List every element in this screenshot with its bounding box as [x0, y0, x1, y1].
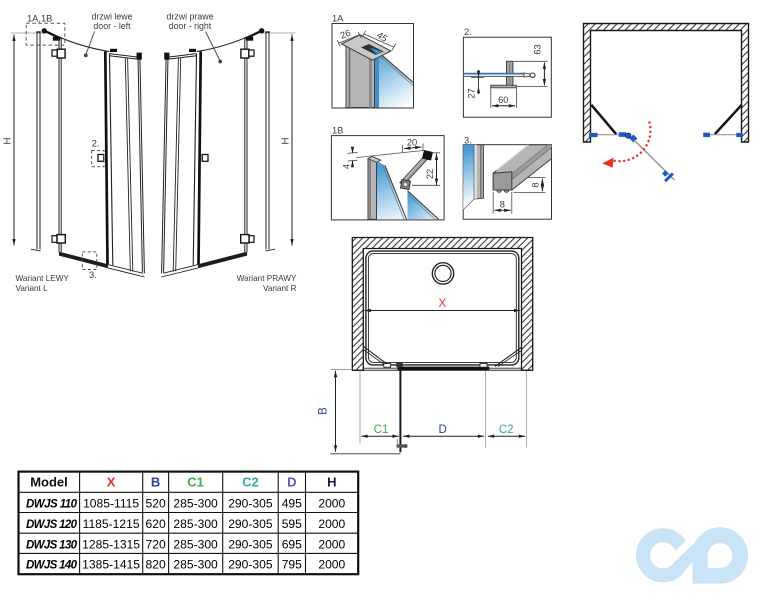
svg-text:8: 8 [531, 182, 541, 187]
svg-text:door - right: door - right [169, 21, 212, 31]
svg-text:285-300: 285-300 [173, 517, 218, 531]
svg-text:27: 27 [467, 88, 477, 98]
svg-text:X: X [438, 298, 446, 310]
svg-text:1185-1215: 1185-1215 [83, 517, 140, 531]
svg-text:60: 60 [498, 95, 508, 105]
svg-text:B: B [151, 475, 160, 490]
svg-text:20: 20 [407, 138, 417, 148]
svg-text:1085-1115: 1085-1115 [83, 497, 139, 511]
svg-text:290-305: 290-305 [228, 517, 273, 531]
svg-text:290-305: 290-305 [228, 558, 273, 572]
svg-text:C1: C1 [374, 424, 389, 436]
svg-text:B: B [318, 407, 330, 415]
svg-text:1B: 1B [332, 126, 343, 136]
svg-text:2000: 2000 [318, 497, 345, 511]
svg-text:1A,1B: 1A,1B [27, 14, 52, 24]
svg-text:285-300: 285-300 [173, 497, 218, 511]
svg-text:DWJS 110: DWJS 110 [26, 499, 78, 511]
svg-text:DWJS 120: DWJS 120 [26, 519, 78, 531]
svg-text:drzwi prawe: drzwi prawe [167, 11, 214, 21]
svg-text:620: 620 [146, 517, 166, 531]
svg-text:1A: 1A [332, 14, 344, 24]
svg-text:285-300: 285-300 [173, 537, 218, 551]
svg-text:8: 8 [500, 200, 505, 210]
svg-text:C1: C1 [187, 475, 204, 490]
svg-text:Variant R: Variant R [263, 284, 297, 293]
svg-text:Variant L: Variant L [16, 284, 49, 293]
svg-text:520: 520 [146, 497, 166, 511]
svg-text:3.: 3. [464, 136, 472, 146]
svg-text:285-300: 285-300 [173, 558, 218, 572]
svg-text:H: H [327, 475, 336, 490]
svg-text:3.: 3. [89, 270, 97, 280]
svg-text:290-305: 290-305 [228, 537, 273, 551]
svg-text:D: D [287, 475, 296, 490]
svg-text:DWJS 130: DWJS 130 [26, 539, 78, 551]
svg-text:2000: 2000 [318, 537, 345, 551]
svg-text:22: 22 [425, 169, 435, 179]
svg-text:63: 63 [532, 44, 542, 54]
svg-text:D: D [438, 424, 446, 436]
svg-text:Model: Model [30, 475, 68, 490]
svg-text:C2: C2 [242, 475, 259, 490]
svg-text:DWJS 140: DWJS 140 [26, 560, 78, 572]
svg-text:2.: 2. [464, 27, 472, 37]
svg-text:795: 795 [282, 558, 302, 572]
svg-text:2000: 2000 [318, 517, 345, 531]
svg-text:H: H [281, 137, 292, 144]
svg-text:290-305: 290-305 [228, 497, 273, 511]
svg-text:2.: 2. [92, 139, 100, 149]
svg-text:820: 820 [146, 558, 166, 572]
svg-text:4: 4 [342, 164, 352, 169]
svg-text:H: H [3, 137, 14, 144]
svg-text:1385-1415: 1385-1415 [82, 558, 140, 572]
svg-text:Wariant PRAWY: Wariant PRAWY [237, 274, 297, 283]
svg-text:495: 495 [282, 497, 302, 511]
svg-text:Wariant LEWY: Wariant LEWY [16, 274, 70, 283]
svg-text:595: 595 [282, 517, 302, 531]
svg-text:C2: C2 [499, 424, 514, 436]
svg-text:drzwi lewe: drzwi lewe [91, 11, 132, 21]
svg-text:720: 720 [146, 537, 166, 551]
svg-text:X: X [107, 475, 116, 490]
svg-text:door - left: door - left [93, 21, 131, 31]
svg-text:1285-1315: 1285-1315 [82, 537, 140, 551]
svg-text:695: 695 [282, 537, 302, 551]
svg-text:2000: 2000 [318, 558, 345, 572]
